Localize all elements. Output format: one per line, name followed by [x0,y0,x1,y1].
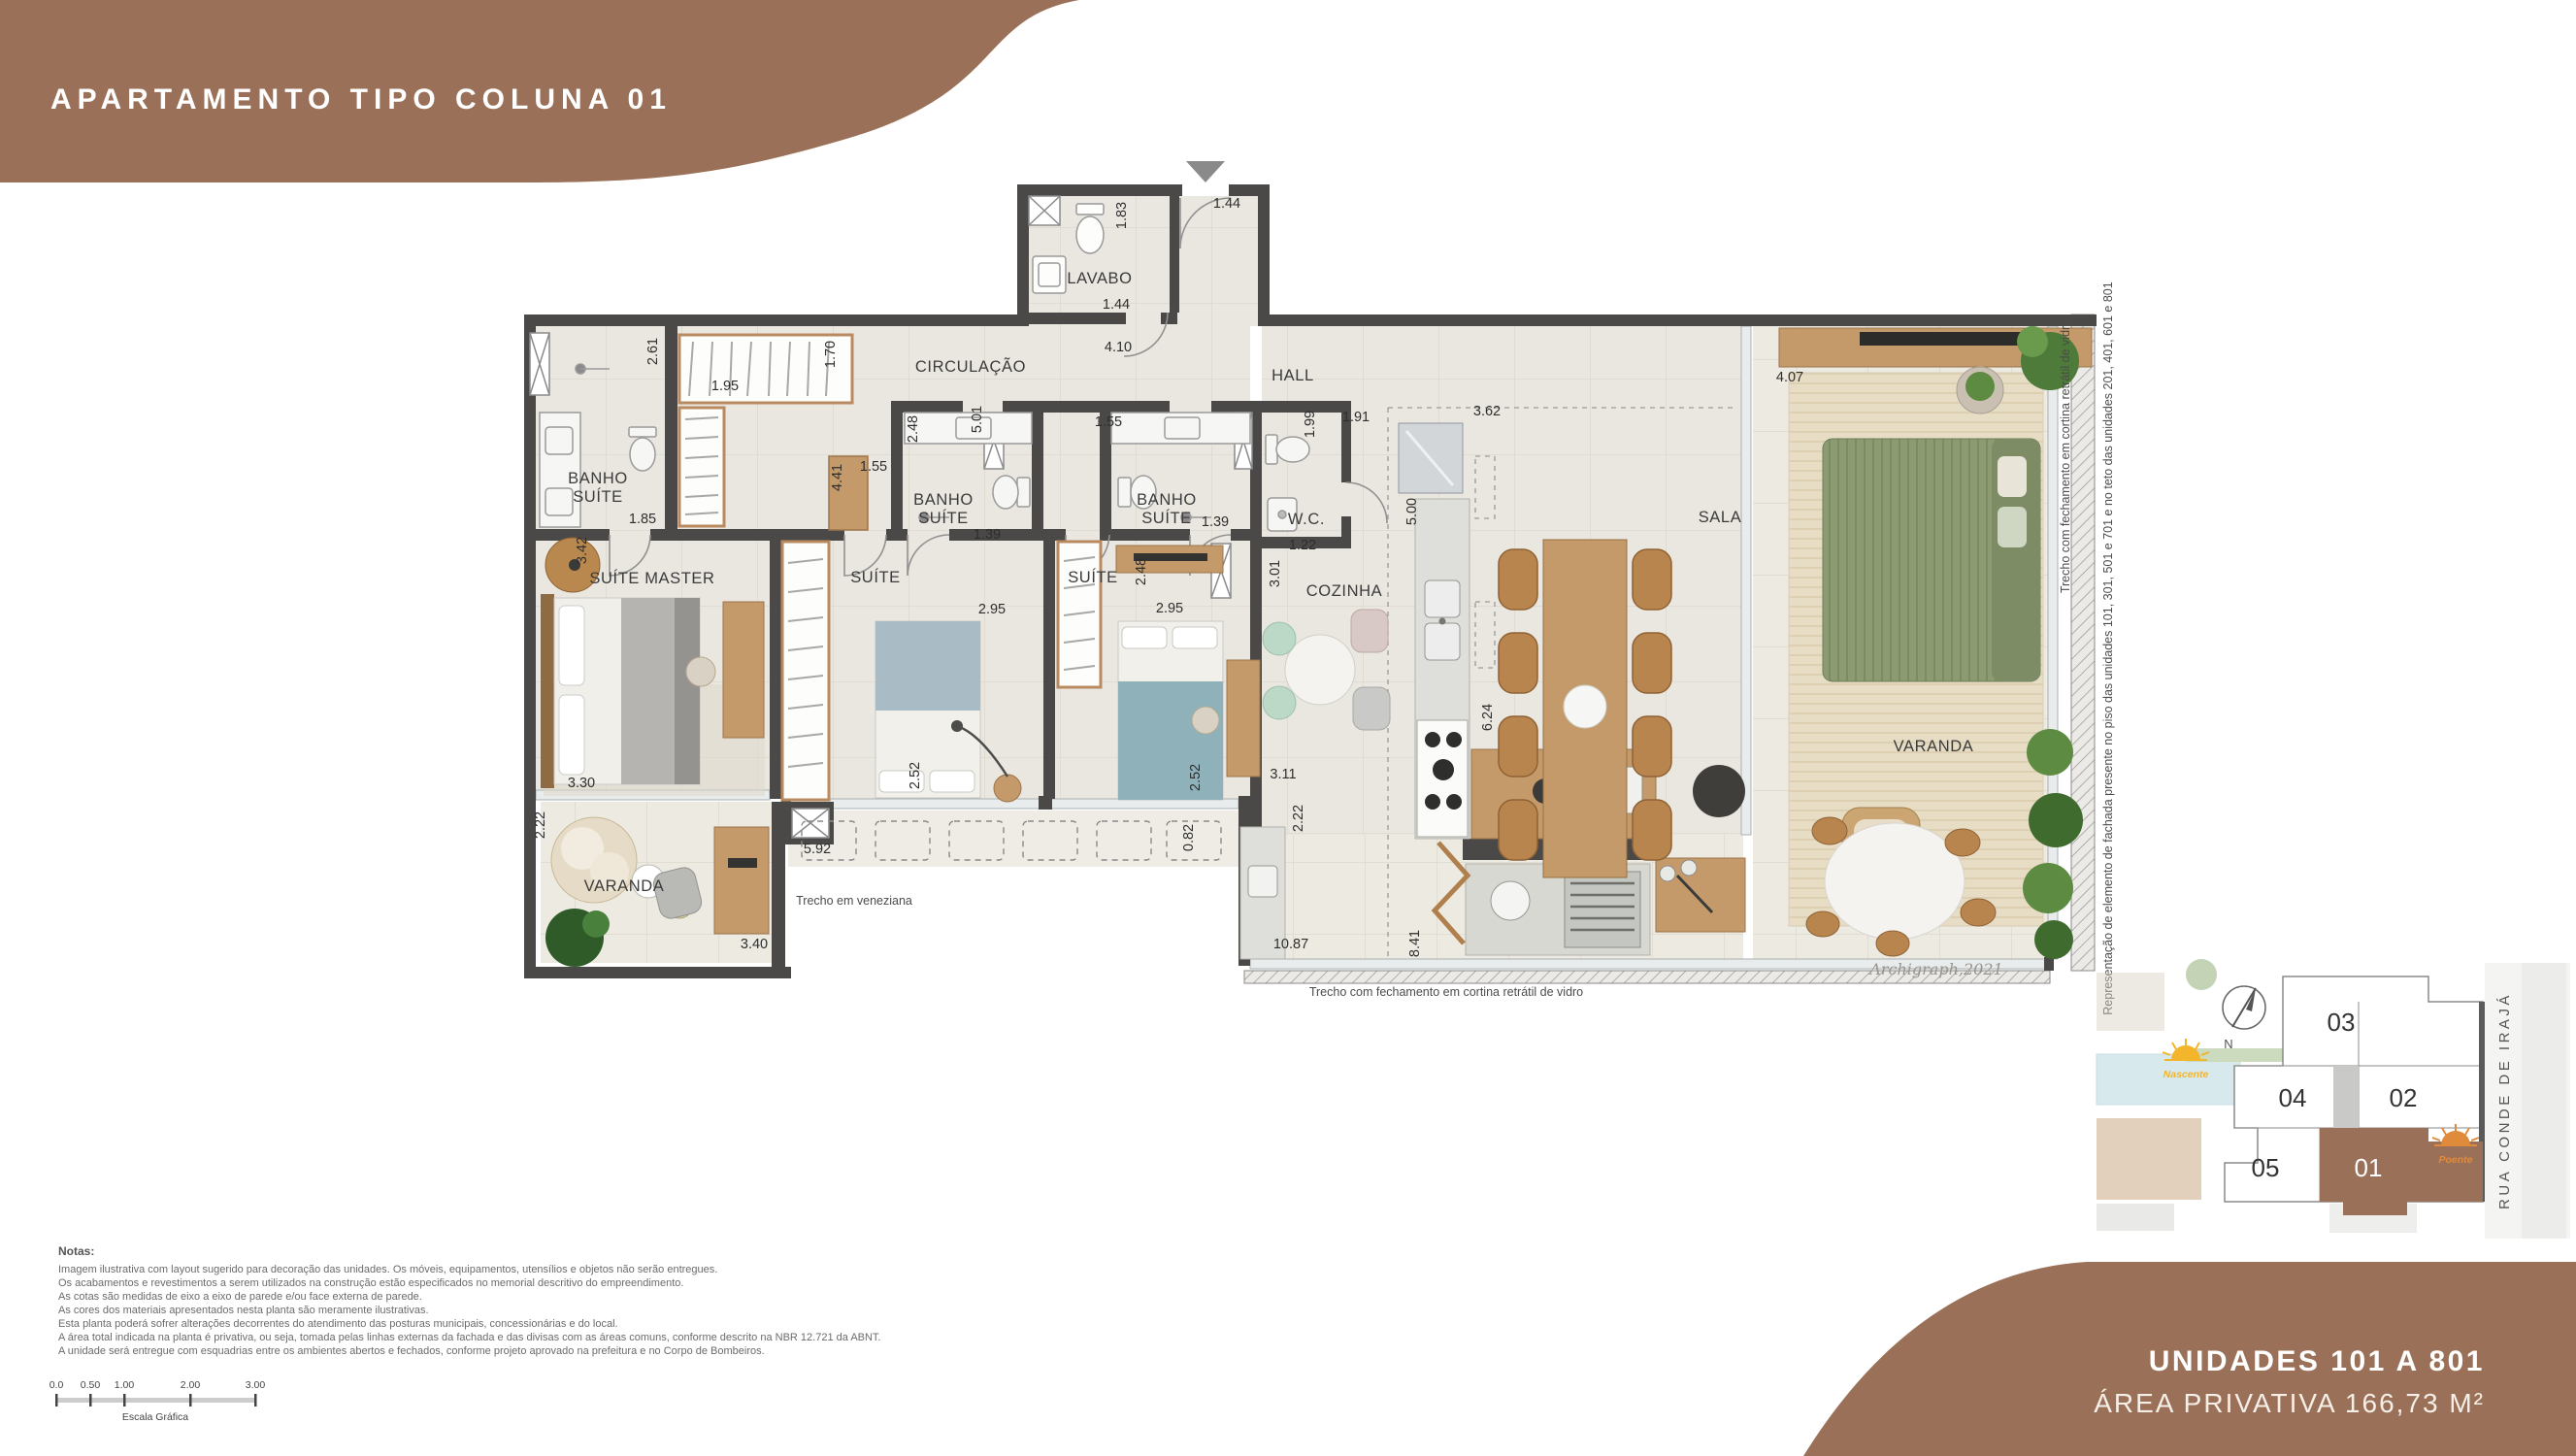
dim-label: 5.00 [1404,498,1420,525]
room-label-hall: HALL [1271,367,1314,384]
dim-label: 2.22 [533,811,548,839]
room-label-banho1-1: BANHO [913,491,974,509]
dim-label: 1.39 [974,527,1001,543]
desk [714,827,769,934]
street-name: RUA CONDE DE IRAJÁ [2496,992,2513,1209]
tv [1860,332,2025,346]
keyplan-unit-02: 02 [2390,1083,2418,1112]
dim-label: 4.07 [1776,370,1803,385]
shaft-left [530,333,549,395]
room-label-varanda-left: VARANDA [584,877,665,895]
dim-label: 1.22 [1289,538,1316,553]
dim-label: 2.95 [978,602,1006,617]
dim-label: 5.01 [970,406,985,433]
dim-label: 4.10 [1105,340,1132,355]
dim-label: 2.52 [1188,764,1204,791]
dim-label: 3.11 [1270,767,1296,782]
room-label-wc: W.C. [1288,511,1325,528]
entry-arrow-icon [1186,161,1225,182]
room-label-varanda-right: VARANDA [1894,738,1974,755]
scale-bar-line [56,1398,255,1403]
room-label-banho1-2: SUÍTE [918,509,969,527]
scale-caption: Escala Gráfica [122,1411,188,1423]
annotation-fachada: Representação de elemento de fachada pre… [2101,281,2115,1014]
glass-sala-varanda [1741,326,1751,835]
room-label-banho2-1: BANHO [1137,491,1197,509]
notes-line: As cores dos materiais apresentados nest… [58,1305,429,1316]
dim-label: 2.95 [1156,601,1183,616]
fachada-hatch-right [2071,314,2095,971]
notes-line: A área total indicada na planta é privat… [58,1332,881,1343]
dim-label: 3.62 [1473,404,1501,419]
dim-label: 5.92 [804,842,831,857]
room-label-suite2: SUÍTE [1068,568,1118,586]
outdoor-table [1825,823,1965,940]
floorplan-canvas: APARTAMENTO TIPO COLUNA 01 UNIDADES 101 … [0,0,2576,1456]
scale-tick: 0.50 [81,1379,101,1391]
dim-label: 8.41 [1407,930,1423,957]
dim-label: 1.55 [860,459,887,475]
dim-label: 2.48 [906,415,921,443]
scale-tick: 1.00 [115,1379,135,1391]
dim-label: 1.85 [629,512,656,527]
dim-label: 1.70 [823,341,839,368]
room-label-circulacao: CIRCULAÇÃO [915,356,1026,376]
annotation-cortina-bottom: Trecho com fechamento em cortina retráti… [1309,985,1583,999]
page-title: APARTAMENTO TIPO COLUNA 01 [50,83,672,116]
dim-label: 2.61 [645,338,661,365]
dim-label: 10.87 [1273,937,1308,952]
notes-line: Os acabamentos e revestimentos a serem u… [58,1277,683,1289]
room-label-suite-master: SUÍTE MASTER [589,569,714,587]
floor-plan: LAVABO CIRCULAÇÃO HALL BANHO SUÍTE SUÍTE… [524,161,2115,1015]
notes-line: As cotas são medidas de eixo a eixo de p… [58,1291,422,1303]
signature: Archigraph,2021 [1867,960,2002,978]
room-label-banho-master-1: BANHO [568,470,628,487]
compass-north-label: N [2224,1037,2232,1051]
scale-tick: 3.00 [246,1379,266,1391]
shaft-lavabo [1029,196,1060,225]
room-label-banho2-2: SUÍTE [1141,509,1192,527]
dim-label: 1.95 [711,379,739,394]
scale-bar: 0.0 0.50 1.00 2.00 3.00 Escala Gráfica [50,1379,266,1423]
building-core [2333,1066,2359,1128]
dim-label: 2.52 [908,762,923,789]
dim-label: 1.44 [1103,297,1130,313]
dim-label: 6.24 [1480,704,1496,731]
bottom-banner: UNIDADES 101 A 801 ÁREA PRIVATIVA 166,73… [1803,1262,2576,1456]
dim-label: 2.48 [1134,558,1149,585]
brochure-page: APARTAMENTO TIPO COLUNA 01 UNIDADES 101 … [0,0,2576,1456]
notes-line: Esta planta poderá sofrer alterações dec… [58,1318,618,1330]
nascente-label: Nascente [2163,1069,2209,1080]
dim-label: 1.39 [1202,514,1229,530]
annotation-cortina-right: Trecho com fechamento em cortina retráti… [2059,319,2072,593]
room-label-sala: SALA [1699,509,1742,526]
dim-label: 1.99 [1303,411,1318,438]
keyplan-unit-03: 03 [2328,1008,2356,1037]
scale-tick: 2.00 [181,1379,201,1391]
nook-table [1285,635,1355,705]
compass: N [2223,986,2265,1051]
room-label-cozinha: COZINHA [1306,582,1382,600]
notes-line: Imagem ilustrativa com layout sugerido p… [58,1264,717,1275]
room-label-lavabo: LAVABO [1067,270,1132,287]
dim-label: 0.82 [1181,824,1197,851]
dim-label: 1.44 [1213,196,1240,212]
poente-label: Poente [2438,1154,2472,1166]
dim-label: 3.30 [568,776,595,791]
street-strip-inner [2522,963,2566,1239]
footer-area: ÁREA PRIVATIVA 166,73 M² [2094,1388,2485,1418]
shaft-varanda [792,809,829,838]
notes-heading: Notas: [58,1244,94,1258]
scale-tick: 0.0 [50,1379,64,1391]
annotation-veneziana: Trecho em veneziana [796,894,912,908]
top-banner: APARTAMENTO TIPO COLUNA 01 [0,0,1079,182]
room-label-suite1: SUÍTE [850,568,901,586]
dim-label: 2.22 [1291,805,1306,832]
keyplan-unit-04: 04 [2279,1083,2307,1112]
footer-units: UNIDADES 101 A 801 [2149,1345,2485,1377]
room-label-banho-master-2: SUÍTE [573,487,623,506]
dim-label: 4.41 [830,464,845,491]
dim-label: 1.55 [1095,414,1122,430]
dim-label: 3.42 [575,537,590,564]
notes-block: Notas: Imagem ilustrativa com layout sug… [58,1244,881,1357]
dim-label: 3.40 [741,937,768,952]
dim-label: 1.83 [1114,202,1130,229]
keyplan-unit-01: 01 [2355,1153,2383,1182]
keyplan-unit-05: 05 [2252,1153,2280,1182]
dim-label: 3.01 [1268,560,1283,587]
coffee-table [1693,765,1745,817]
key-plan: 03 04 02 05 01 N Nascente [2097,959,2570,1239]
dim-label: 1.91 [1342,410,1370,425]
notes-line: A unidade será entregue com esquadrias e… [58,1345,765,1357]
